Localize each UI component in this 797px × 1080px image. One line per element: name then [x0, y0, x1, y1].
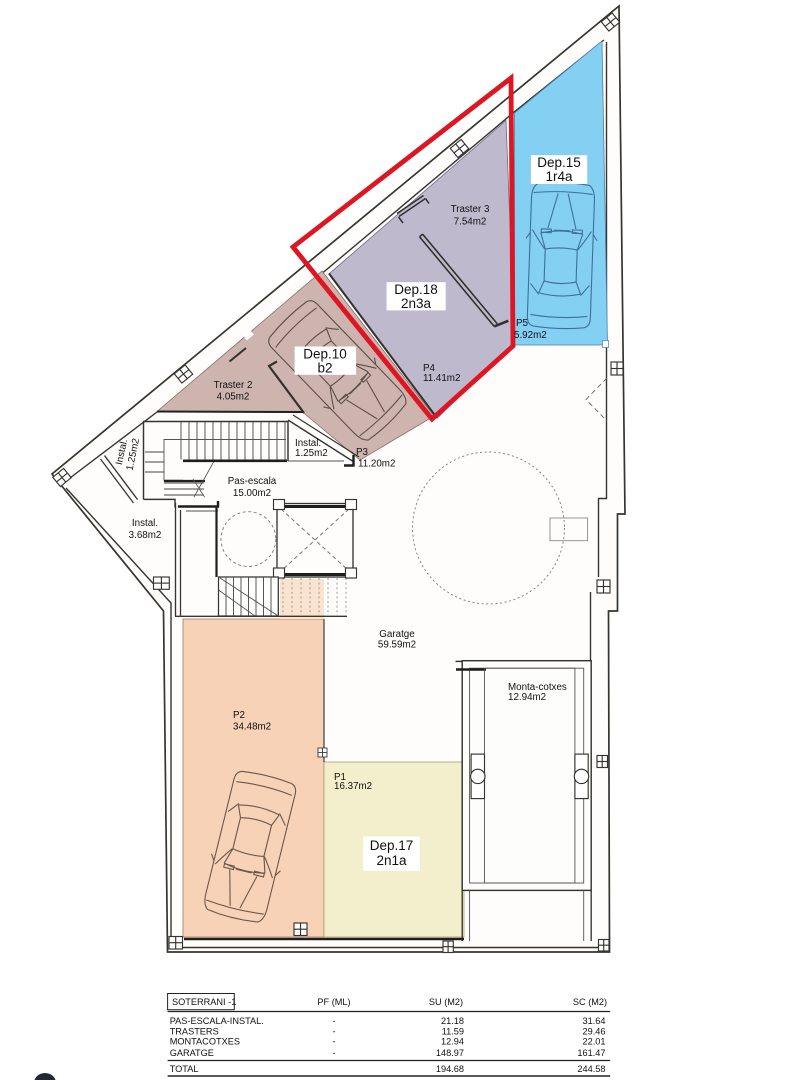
svg-text:P3: P3 [356, 447, 369, 458]
svg-text:21.18: 21.18 [441, 1016, 464, 1026]
svg-text:7.54m2: 7.54m2 [454, 217, 487, 228]
svg-text:-: - [332, 1037, 335, 1047]
svg-text:-: - [332, 1016, 335, 1026]
svg-text:Garatge: Garatge [379, 629, 415, 640]
svg-text:SU (M2): SU (M2) [429, 997, 463, 1007]
svg-text:31.64: 31.64 [583, 1016, 606, 1026]
svg-text:11.41m2: 11.41m2 [423, 373, 460, 384]
svg-text:Traster 3: Traster 3 [451, 204, 490, 215]
svg-text:29.46: 29.46 [583, 1027, 606, 1037]
svg-text:34.48m2: 34.48m2 [233, 722, 271, 733]
svg-text:SOTERRANI -1: SOTERRANI -1 [172, 997, 236, 1007]
svg-text:2n1a: 2n1a [376, 853, 407, 868]
svg-text:Dep.10: Dep.10 [303, 347, 347, 362]
svg-text:P5: P5 [516, 318, 529, 329]
svg-text:1r4a: 1r4a [545, 169, 573, 184]
svg-text:5.92m2: 5.92m2 [514, 330, 547, 341]
svg-text:PAS-ESCALA-INSTAL.: PAS-ESCALA-INSTAL. [170, 1016, 264, 1026]
svg-text:TOTAL: TOTAL [170, 1064, 199, 1074]
svg-text:Pas-escala: Pas-escala [228, 476, 277, 487]
svg-text:244.58: 244.58 [577, 1064, 605, 1074]
svg-text:TRASTERS: TRASTERS [170, 1027, 219, 1037]
svg-text:-: - [332, 1027, 335, 1037]
svg-text:11.59: 11.59 [442, 1027, 464, 1037]
svg-text:Dep.17: Dep.17 [370, 838, 414, 853]
svg-text:PF (ML): PF (ML) [317, 997, 350, 1007]
svg-text:b2: b2 [317, 361, 332, 376]
svg-text:-: - [332, 1048, 335, 1058]
svg-text:2n3a: 2n3a [401, 296, 432, 311]
svg-text:59.59m2: 59.59m2 [378, 640, 416, 651]
svg-text:16.37m2: 16.37m2 [334, 781, 372, 792]
svg-text:148.97: 148.97 [436, 1048, 464, 1058]
svg-text:SC (M2): SC (M2) [573, 997, 607, 1007]
svg-text:Dep.18: Dep.18 [394, 282, 438, 297]
svg-text:194.68: 194.68 [436, 1064, 464, 1074]
svg-text:MONTACOTXES: MONTACOTXES [170, 1037, 240, 1047]
svg-text:1.25m2: 1.25m2 [295, 448, 328, 459]
svg-text:Traster 2: Traster 2 [214, 380, 253, 391]
svg-text:Dep.15: Dep.15 [537, 155, 581, 170]
svg-text:4.05m2: 4.05m2 [217, 392, 250, 403]
svg-text:P2: P2 [233, 710, 245, 721]
svg-text:GARATGE: GARATGE [170, 1048, 214, 1058]
svg-text:11.20m2: 11.20m2 [358, 459, 395, 470]
svg-text:161.47: 161.47 [577, 1048, 605, 1058]
svg-text:12.94: 12.94 [441, 1037, 464, 1047]
svg-text:3.68m2: 3.68m2 [129, 530, 162, 541]
svg-text:12.94m2: 12.94m2 [508, 692, 546, 703]
svg-text:22.01: 22.01 [583, 1037, 606, 1047]
svg-text:15.00m2: 15.00m2 [233, 488, 271, 499]
svg-text:Instal.: Instal. [132, 518, 158, 529]
